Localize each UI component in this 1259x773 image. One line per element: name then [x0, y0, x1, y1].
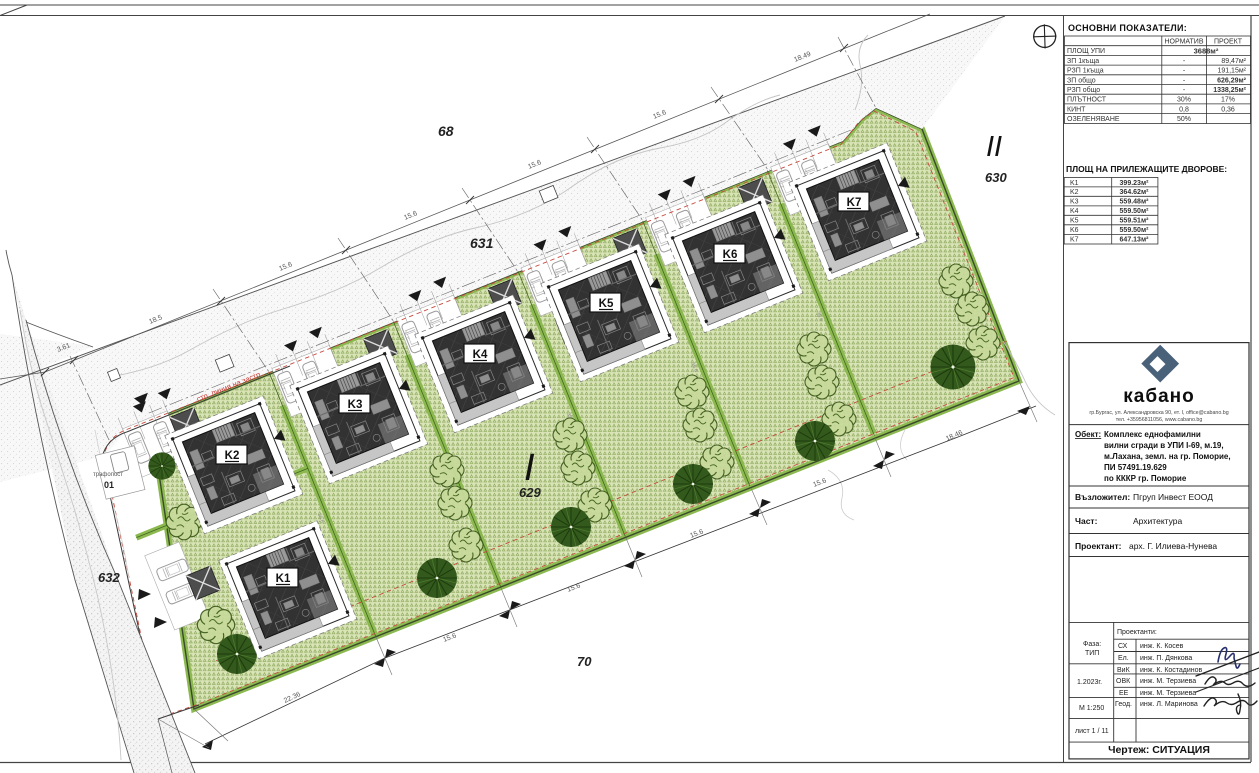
svg-text:ЗП 1къща: ЗП 1къща — [1067, 58, 1099, 65]
svg-text:инж. П. Дянкова: инж. П. Дянкова — [1140, 655, 1192, 662]
svg-text:Пгруп Инвест ЕООД: Пгруп Инвест ЕООД — [1133, 492, 1213, 502]
svg-text:тел. +35956811056, www.cabano.: тел. +35956811056, www.cabano.bg — [1116, 417, 1203, 423]
svg-text:инж. М. Терзиева: инж. М. Терзиева — [1140, 690, 1196, 697]
svg-text:НОРМАТИВ: НОРМАТИВ — [1164, 39, 1203, 46]
svg-text:Част:: Част: — [1075, 516, 1098, 526]
svg-text:гр.Бургас, ул. Александровска: гр.Бургас, ул. Александровска 90, ет. I,… — [1089, 410, 1228, 416]
svg-text:K7: K7 — [1070, 237, 1079, 244]
svg-text:K3: K3 — [1070, 199, 1079, 206]
svg-text:Проектант:: Проектант: — [1075, 541, 1122, 551]
svg-text:ОЗЕЛЕНЯВАНЕ: ОЗЕЛЕНЯВАНЕ — [1067, 116, 1120, 123]
svg-text:РЗП общо: РЗП общо — [1067, 86, 1100, 94]
svg-text:17%: 17% — [1221, 97, 1235, 104]
svg-text:K4: K4 — [473, 349, 488, 361]
svg-text:II: II — [986, 131, 1002, 163]
svg-text:647.13м²: 647.13м² — [1120, 237, 1150, 244]
svg-text:399.23м²: 399.23м² — [1120, 180, 1150, 187]
svg-text:Архитектура: Архитектура — [1133, 516, 1183, 526]
svg-text:K5: K5 — [599, 298, 614, 310]
svg-text:K2: K2 — [225, 450, 240, 462]
svg-text:М 1:250: М 1:250 — [1079, 705, 1104, 712]
svg-text:ОВК: ОВК — [1116, 678, 1131, 685]
svg-text:ПЛОЩ УПИ: ПЛОЩ УПИ — [1067, 48, 1105, 55]
svg-text:СХ: СХ — [1118, 643, 1128, 650]
svg-text:ВиК: ВиК — [1117, 667, 1131, 674]
svg-text:559.51м²: 559.51м² — [1120, 218, 1150, 225]
svg-text:Ел.: Ел. — [1118, 655, 1129, 662]
svg-text:632: 632 — [98, 570, 120, 585]
svg-text:364.62м²: 364.62м² — [1120, 189, 1150, 196]
svg-text:I: I — [524, 447, 535, 489]
svg-text:30%: 30% — [1177, 97, 1191, 104]
svg-text:K4: K4 — [1070, 208, 1079, 215]
svg-text:ПИ 57491.19.629: ПИ 57491.19.629 — [1104, 463, 1167, 472]
svg-text:вилни сгради в УПИ I-69, м.19,: вилни сгради в УПИ I-69, м.19, — [1104, 441, 1224, 450]
svg-text:Фаза:: Фаза: — [1083, 641, 1101, 648]
svg-text:ПЛОЩ НА ПРИЛЕЖАЩИТЕ ДВОРОВЕ:: ПЛОЩ НА ПРИЛЕЖАЩИТЕ ДВОРОВЕ: — [1066, 164, 1227, 174]
svg-text:K1: K1 — [1070, 180, 1079, 187]
svg-text:Проектанти:: Проектанти: — [1117, 629, 1157, 636]
svg-text:трафопост: трафопост — [93, 472, 123, 478]
svg-text:50%: 50% — [1177, 116, 1191, 123]
svg-text:K7: K7 — [847, 197, 862, 209]
svg-text:ПЛЪТНОСТ: ПЛЪТНОСТ — [1067, 97, 1107, 104]
svg-text:ТИП: ТИП — [1085, 650, 1099, 657]
svg-text:ПРОЕКТ: ПРОЕКТ — [1214, 39, 1243, 46]
svg-text:626,29м²: 626,29м² — [1217, 77, 1247, 84]
svg-text:Чертеж: СИТУАЦИЯ: Чертеж: СИТУАЦИЯ — [1108, 744, 1210, 756]
svg-text:559.48м²: 559.48м² — [1120, 199, 1150, 206]
svg-text:кабано: кабано — [1123, 386, 1194, 407]
svg-text:89,47м²: 89,47м² — [1221, 58, 1246, 65]
svg-text:K5: K5 — [1070, 218, 1079, 225]
svg-text:Възложител:: Възложител: — [1075, 492, 1130, 502]
svg-text:ЕЕ: ЕЕ — [1119, 690, 1129, 697]
svg-text:Комплекс еднофамилни: Комплекс еднофамилни — [1104, 430, 1201, 439]
svg-text:Обект:: Обект: — [1075, 430, 1101, 439]
svg-text:ОСНОВНИ ПОКАЗАТЕЛИ:: ОСНОВНИ ПОКАЗАТЕЛИ: — [1068, 23, 1187, 33]
svg-text:Геод.: Геод. — [1115, 701, 1132, 708]
svg-text:68: 68 — [438, 123, 454, 139]
svg-text:K1: K1 — [276, 573, 291, 585]
svg-text:инж. Л. Маринова: инж. Л. Маринова — [1140, 701, 1198, 708]
svg-text:191,15м²: 191,15м² — [1217, 68, 1246, 75]
svg-text:K3: K3 — [348, 399, 363, 411]
svg-text:инж. М. Терзиева: инж. М. Терзиева — [1140, 678, 1196, 685]
svg-text:K2: K2 — [1070, 189, 1079, 196]
svg-text:631: 631 — [470, 235, 494, 251]
svg-text:инж. К. Косев: инж. К. Косев — [1140, 643, 1184, 650]
svg-text:K6: K6 — [723, 249, 738, 261]
svg-text:0,36: 0,36 — [1221, 106, 1235, 113]
svg-text:559.50м²: 559.50м² — [1120, 227, 1150, 234]
svg-text:по КККР гр. Поморие: по КККР гр. Поморие — [1104, 474, 1187, 483]
svg-text:1338,25м²: 1338,25м² — [1213, 87, 1246, 94]
svg-text:РЗП 1къща: РЗП 1къща — [1067, 68, 1104, 75]
svg-text:70: 70 — [577, 654, 592, 669]
svg-text:630: 630 — [985, 170, 1007, 185]
svg-text:м.Лахана, земл. на гр. Поморие: м.Лахана, земл. на гр. Поморие, — [1104, 452, 1231, 461]
svg-text:арх. Г. Илиева-Нунева: арх. Г. Илиева-Нунева — [1129, 541, 1217, 551]
svg-text:3688м²: 3688м² — [1194, 46, 1219, 55]
svg-text:0,8: 0,8 — [1179, 106, 1189, 113]
svg-text:01: 01 — [104, 480, 114, 490]
svg-text:559.50м²: 559.50м² — [1120, 208, 1150, 215]
svg-text:лист 1 / 11: лист 1 / 11 — [1075, 728, 1109, 735]
svg-text:КИНТ: КИНТ — [1067, 106, 1086, 113]
svg-text:инж. К. Костадинов: инж. К. Костадинов — [1140, 667, 1203, 674]
svg-text:1.2023г.: 1.2023г. — [1077, 679, 1102, 686]
svg-text:K6: K6 — [1070, 227, 1079, 234]
svg-text:ЗП общо: ЗП общо — [1067, 76, 1096, 84]
